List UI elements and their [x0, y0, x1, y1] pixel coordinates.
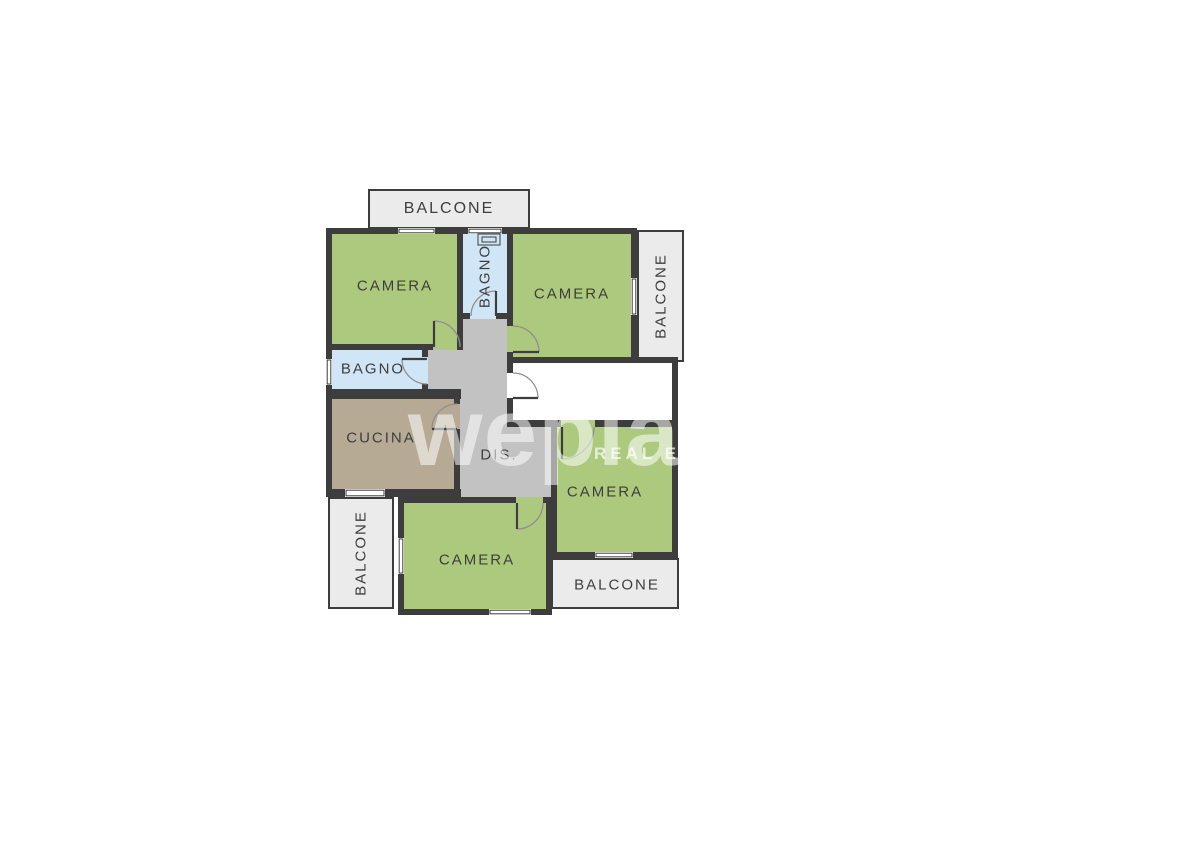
wall-segment — [326, 389, 461, 399]
wall-segment — [398, 609, 489, 615]
balcony-top-label: BALCONE — [404, 201, 494, 217]
wall-segment — [672, 357, 678, 558]
window-gap — [489, 609, 531, 615]
entry-hall-floor — [513, 363, 672, 420]
bathroom-left-label: BAGNO — [341, 362, 405, 377]
corridor-label: DIS. — [480, 448, 517, 463]
bedroom-top-left-label: CAMERA — [357, 279, 433, 294]
window-frame — [346, 490, 384, 496]
wall-segment — [507, 420, 561, 427]
window-frame — [327, 360, 331, 384]
balcony-right-label: BALCONE — [654, 253, 669, 339]
balcony-bottom-left-label: BALCONE — [354, 510, 369, 596]
window-frame — [469, 229, 501, 233]
bedroom-bottom-label: CAMERA — [439, 553, 515, 568]
window-frame — [399, 539, 403, 573]
window-frame — [632, 279, 636, 314]
window-gap — [345, 489, 385, 497]
window-frame — [399, 229, 434, 233]
bedroom-right-label: CAMERA — [567, 485, 643, 500]
floor-plan-page: BALCONE CAMERA BAGNO CAMERA BALCONE BAGN… — [0, 0, 1200, 848]
wall-segment — [459, 344, 463, 350]
wall-segment — [531, 609, 552, 615]
window-frame — [596, 553, 632, 557]
wall-segment — [326, 489, 345, 497]
bedroom-top-right-label: CAMERA — [534, 287, 610, 302]
window-frame — [490, 610, 530, 614]
bathroom-top-label: BAGNO — [478, 244, 493, 308]
balcony-bottom-right-label: BALCONE — [574, 578, 660, 593]
wall-segment — [385, 489, 461, 497]
kitchen-label: CUCINA — [346, 431, 416, 446]
